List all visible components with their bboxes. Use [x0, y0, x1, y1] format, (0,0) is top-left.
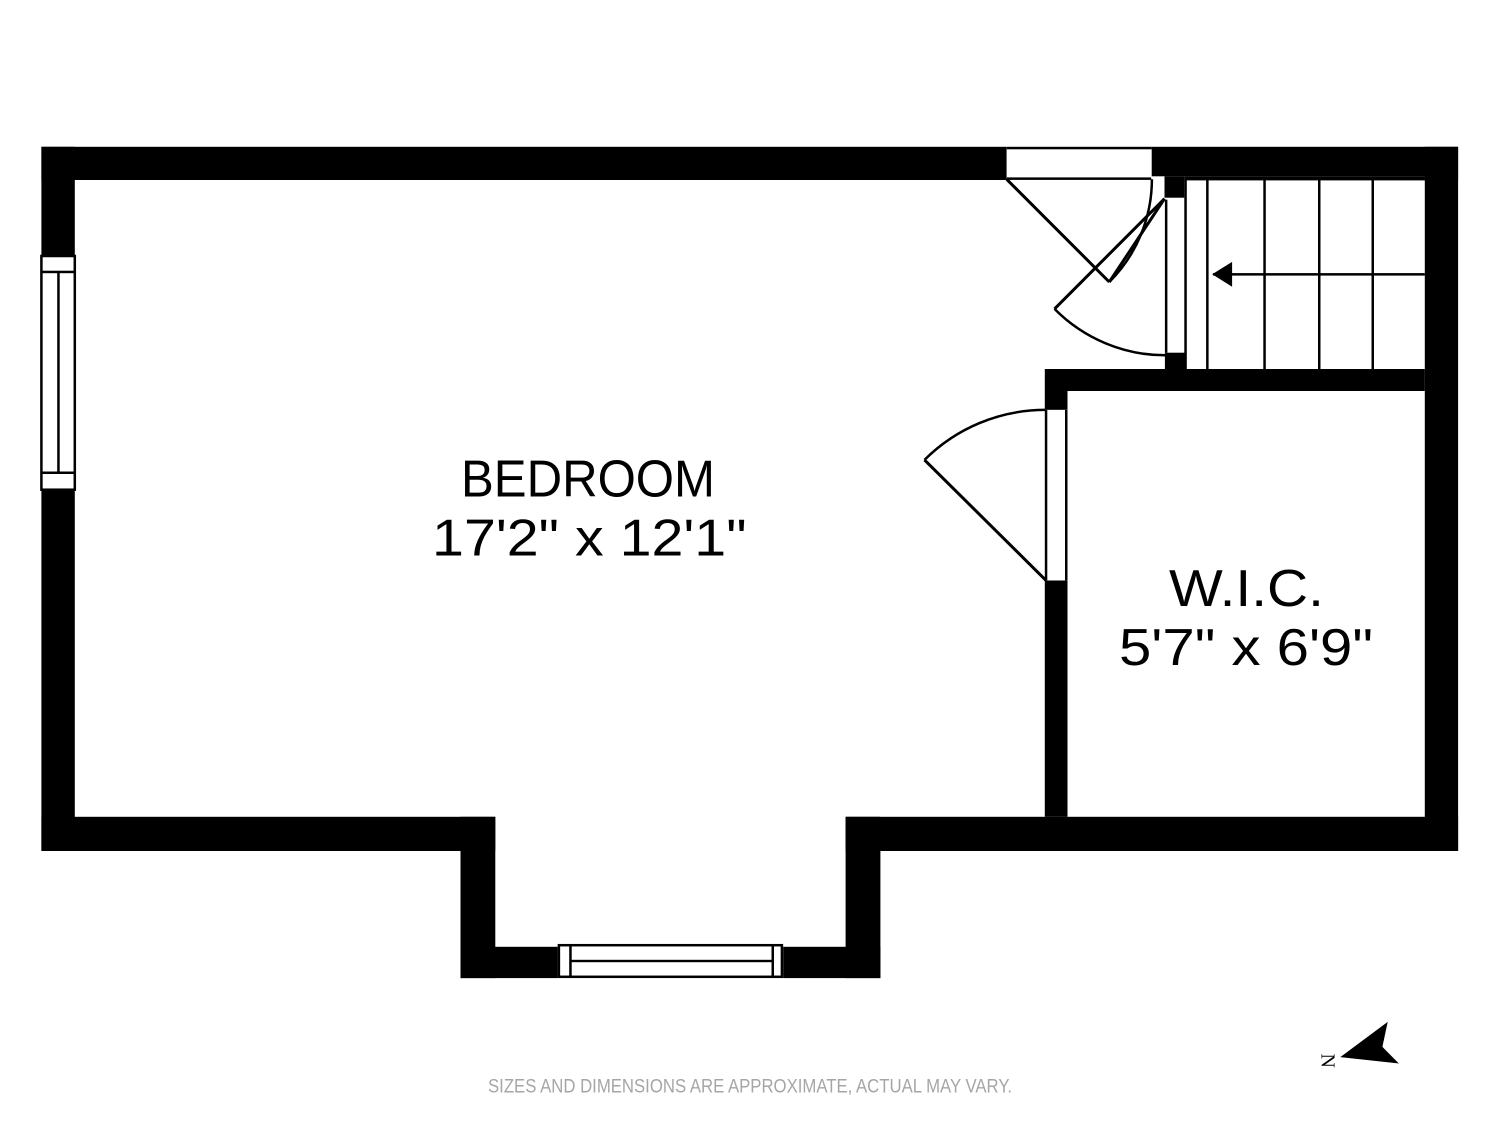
svg-text:N: N	[1317, 1054, 1339, 1068]
svg-text:17'2" x 12'1": 17'2" x 12'1"	[432, 509, 747, 567]
svg-text:W.I.C.: W.I.C.	[1169, 560, 1324, 618]
svg-text:BEDROOM: BEDROOM	[461, 451, 715, 509]
svg-text:5'7" x 6'9": 5'7" x 6'9"	[1119, 619, 1373, 677]
svg-text:SIZES AND DIMENSIONS ARE APPRO: SIZES AND DIMENSIONS ARE APPROXIMATE, AC…	[488, 1076, 1012, 1097]
